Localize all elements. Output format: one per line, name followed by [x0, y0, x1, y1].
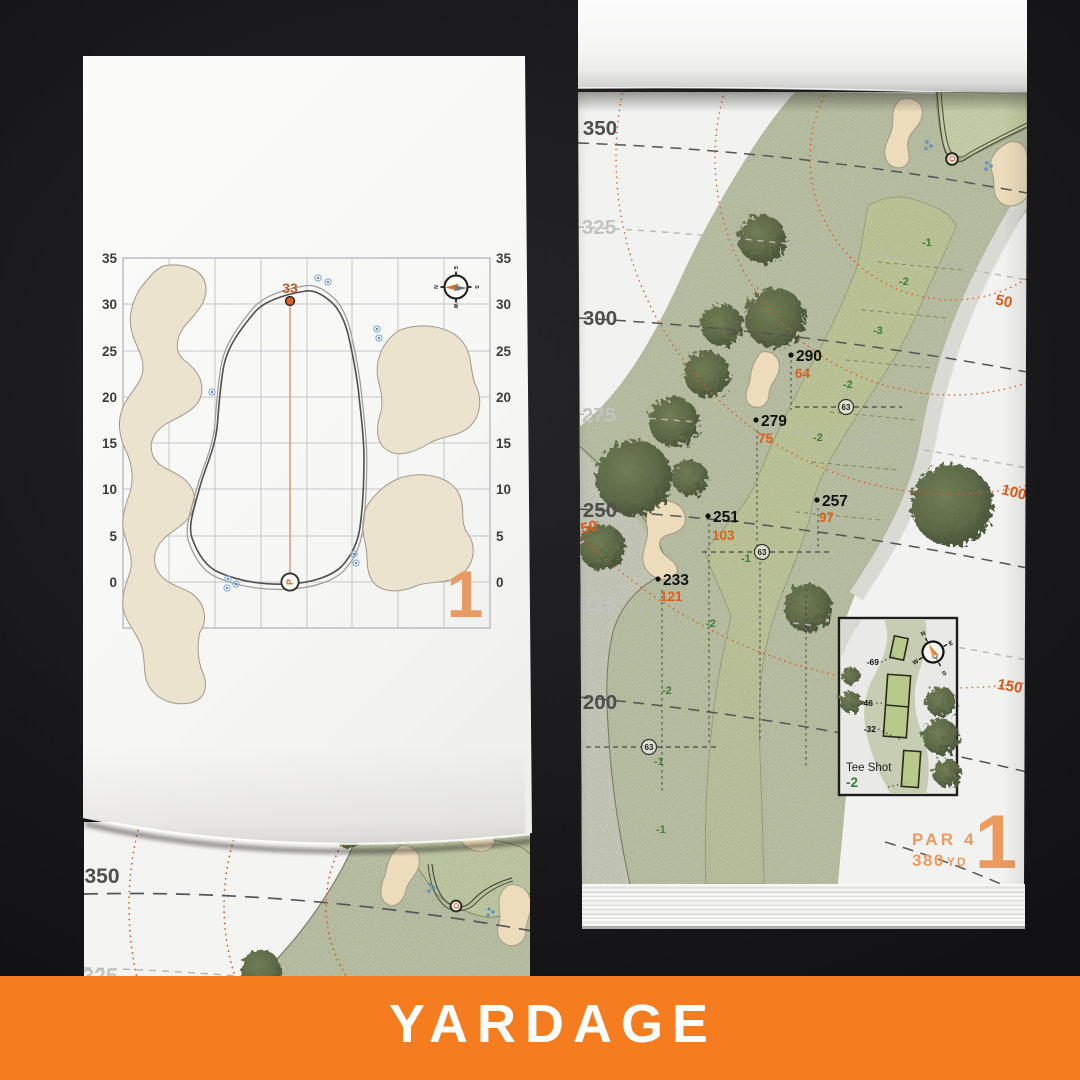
- svg-text:233: 233: [663, 572, 689, 589]
- svg-text:W: W: [452, 304, 458, 309]
- svg-text:-2: -2: [899, 276, 909, 288]
- svg-text:-1: -1: [654, 756, 664, 768]
- svg-text:279: 279: [761, 413, 787, 430]
- svg-text:P: P: [285, 579, 295, 585]
- svg-text:Tee Shot: Tee Shot: [846, 762, 892, 774]
- svg-text:25: 25: [102, 344, 118, 359]
- svg-text:350: 350: [84, 865, 119, 888]
- svg-text:63: 63: [758, 548, 767, 557]
- svg-text:97: 97: [819, 510, 834, 525]
- svg-text:35: 35: [496, 251, 512, 266]
- svg-text:350: 350: [583, 117, 617, 140]
- svg-text:75: 75: [758, 431, 774, 446]
- svg-text:30: 30: [496, 297, 511, 312]
- svg-text:33: 33: [282, 280, 298, 296]
- svg-text:-1: -1: [741, 553, 751, 565]
- svg-text:15: 15: [102, 436, 118, 451]
- svg-text:20: 20: [496, 390, 511, 405]
- svg-text:64: 64: [795, 366, 811, 381]
- svg-text:0: 0: [109, 575, 117, 590]
- svg-text:-2: -2: [662, 685, 672, 697]
- svg-text:103: 103: [712, 528, 735, 543]
- svg-text:1: 1: [447, 557, 484, 631]
- svg-text:E: E: [452, 266, 458, 270]
- svg-text:-1: -1: [922, 237, 932, 249]
- svg-text:380YD: 380YD: [912, 851, 968, 870]
- svg-text:300: 300: [583, 307, 617, 330]
- svg-text:-2: -2: [843, 379, 853, 391]
- svg-text:5: 5: [496, 529, 504, 544]
- svg-text:30: 30: [102, 297, 117, 312]
- svg-text:-2: -2: [813, 432, 823, 444]
- svg-text:20: 20: [102, 390, 117, 405]
- svg-text:-3: -3: [873, 325, 883, 337]
- svg-text:-32: -32: [864, 724, 877, 734]
- svg-text:-2: -2: [706, 618, 716, 630]
- svg-text:25: 25: [496, 344, 512, 359]
- svg-text:200: 200: [583, 691, 617, 714]
- svg-text:63: 63: [842, 403, 851, 412]
- svg-text:251: 251: [713, 509, 739, 526]
- svg-text:5: 5: [109, 529, 117, 544]
- svg-text:-46: -46: [861, 698, 874, 708]
- svg-text:250: 250: [583, 499, 617, 522]
- svg-text:257: 257: [822, 493, 848, 510]
- svg-text:-69: -69: [867, 657, 880, 667]
- svg-text:15: 15: [496, 436, 512, 451]
- svg-text:-1: -1: [656, 824, 666, 836]
- svg-text:10: 10: [496, 482, 511, 497]
- svg-text:0: 0: [496, 575, 504, 590]
- svg-text:121: 121: [660, 589, 683, 604]
- svg-text:35: 35: [102, 251, 118, 266]
- svg-text:10: 10: [102, 482, 117, 497]
- svg-text:N: N: [432, 285, 438, 289]
- svg-text:63: 63: [645, 743, 654, 752]
- svg-text:290: 290: [796, 348, 822, 365]
- svg-text:-2: -2: [846, 775, 858, 790]
- svg-text:PAR 4: PAR 4: [912, 830, 977, 849]
- svg-text:S: S: [473, 285, 479, 289]
